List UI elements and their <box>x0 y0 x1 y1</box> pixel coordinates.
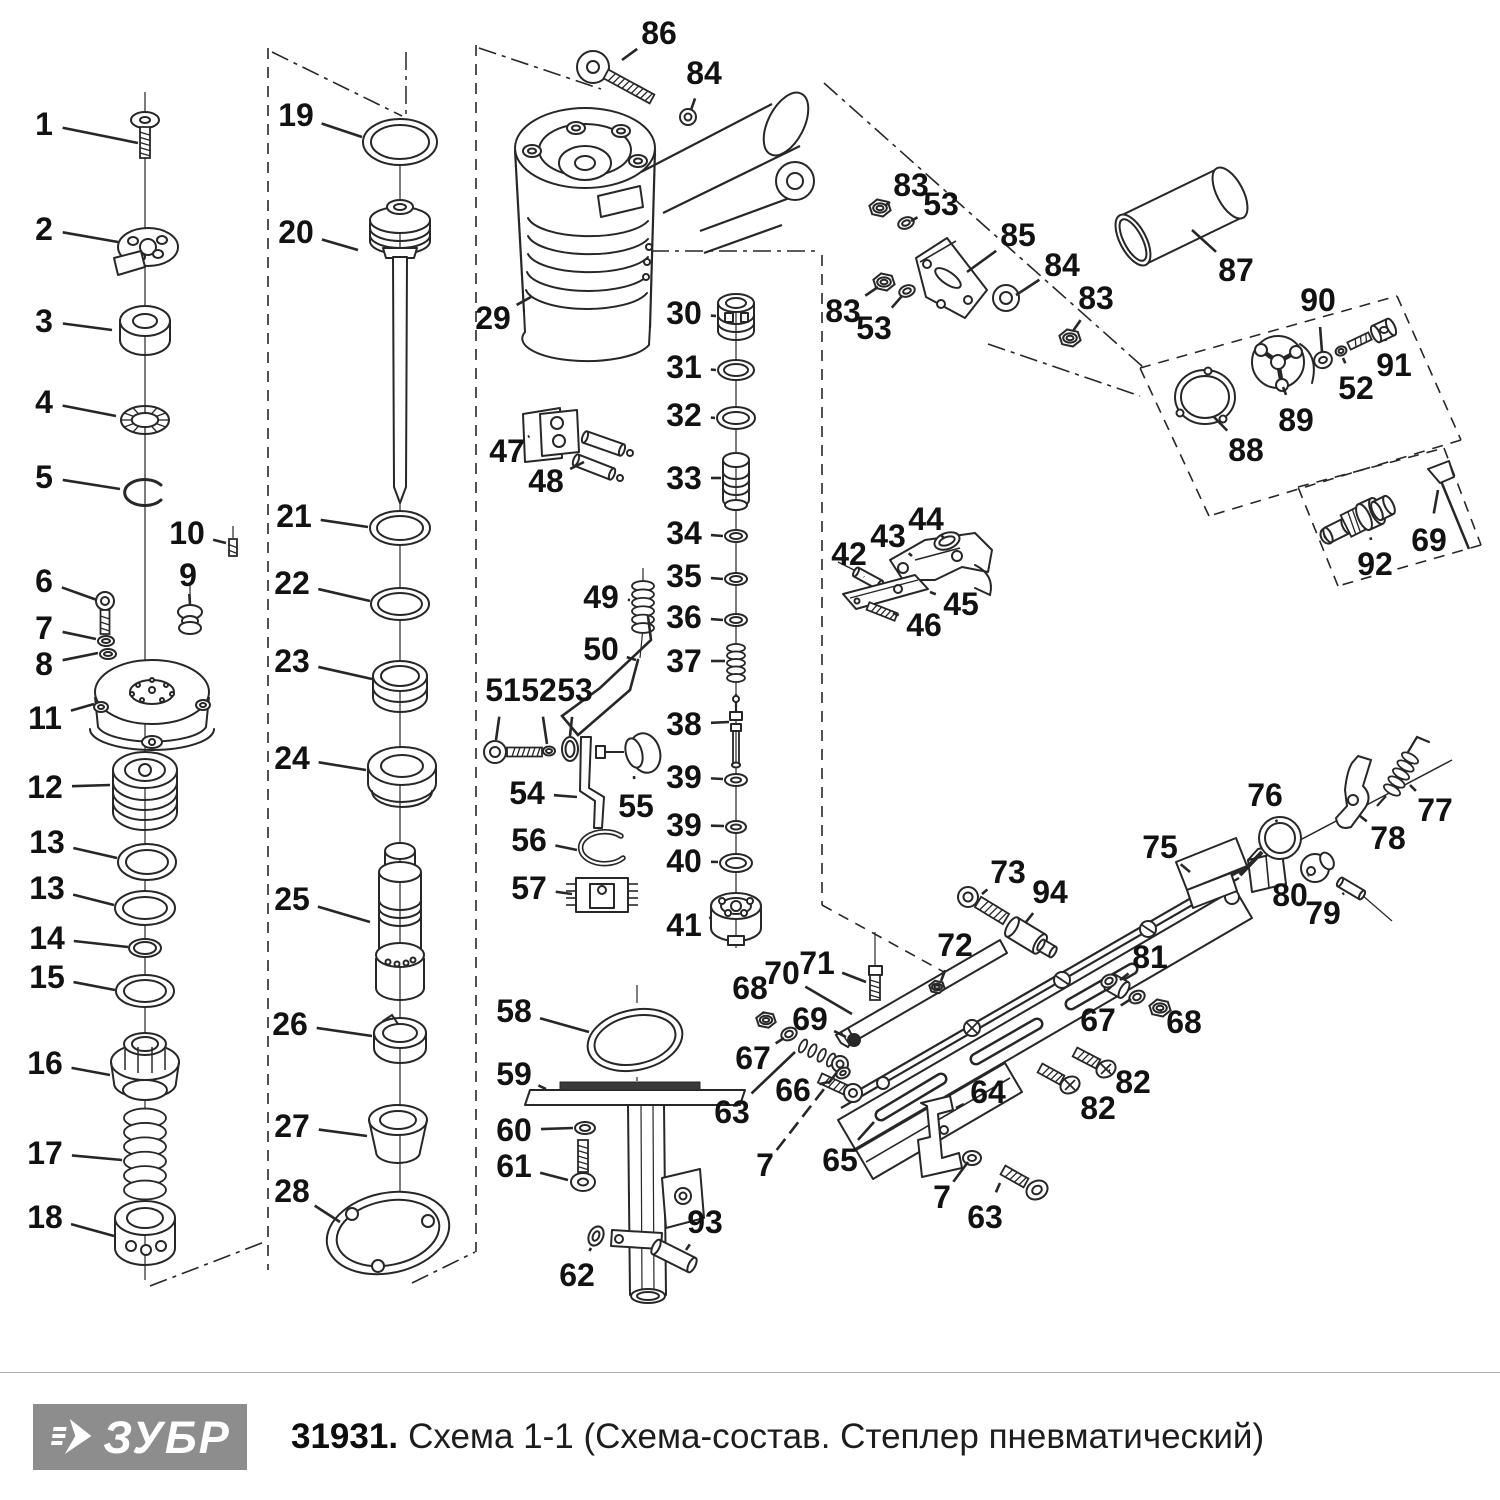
svg-text:76: 76 <box>1247 777 1283 813</box>
svg-text:75: 75 <box>1142 829 1178 865</box>
svg-text:83: 83 <box>1078 280 1114 316</box>
svg-text:39: 39 <box>666 759 702 795</box>
svg-text:9: 9 <box>179 557 197 593</box>
part-label-28: 28 <box>274 1173 340 1222</box>
svg-text:78: 78 <box>1370 820 1406 856</box>
svg-text:49: 49 <box>583 579 619 615</box>
part-label-69: 69 <box>1411 490 1447 558</box>
svg-text:90: 90 <box>1300 282 1336 318</box>
svg-text:92: 92 <box>1357 546 1393 582</box>
part-label-57: 57 <box>511 870 572 906</box>
svg-text:2: 2 <box>35 211 53 247</box>
svg-text:14: 14 <box>29 920 65 956</box>
part-label-71: 71 <box>799 945 866 982</box>
svg-text:77: 77 <box>1417 792 1453 828</box>
svg-text:91: 91 <box>1376 347 1412 383</box>
part-label-17: 17 <box>27 1135 122 1171</box>
part-label-84: 84 <box>1016 247 1080 295</box>
zubr-arrow-icon <box>49 1417 95 1457</box>
svg-text:16: 16 <box>27 1045 63 1081</box>
svg-text:22: 22 <box>274 565 310 601</box>
svg-text:63: 63 <box>714 1094 750 1130</box>
svg-text:21: 21 <box>276 498 312 534</box>
svg-text:81: 81 <box>1132 939 1168 975</box>
part-label-12: 12 <box>27 769 110 805</box>
svg-text:48: 48 <box>528 463 564 499</box>
svg-text:57: 57 <box>511 870 547 906</box>
part-label-92: 92 <box>1357 537 1393 582</box>
part-label-3: 3 <box>35 303 112 339</box>
svg-text:73: 73 <box>990 854 1026 890</box>
part-label-13: 13 <box>29 870 114 906</box>
part-label-61: 61 <box>496 1148 568 1184</box>
svg-text:88: 88 <box>1228 432 1264 468</box>
part-label-56: 56 <box>511 822 577 858</box>
svg-text:20: 20 <box>278 214 314 250</box>
svg-text:42: 42 <box>831 536 867 572</box>
part-label-78: 78 <box>1360 816 1406 856</box>
svg-text:24: 24 <box>274 740 310 776</box>
construction-lines <box>145 45 1481 1286</box>
svg-text:4: 4 <box>35 384 53 420</box>
part-label-31: 31 <box>666 349 716 385</box>
svg-text:53: 53 <box>557 672 593 708</box>
svg-text:86: 86 <box>641 15 677 51</box>
svg-text:39: 39 <box>666 807 702 843</box>
part-label-36: 36 <box>666 599 723 635</box>
part-label-52: 52 <box>521 672 557 744</box>
svg-text:33: 33 <box>666 460 702 496</box>
part-label-84: 84 <box>686 55 722 110</box>
part-label-37: 37 <box>666 643 725 679</box>
part-label-68: 68 <box>1160 1004 1202 1040</box>
part-label-75: 75 <box>1142 829 1190 872</box>
svg-text:35: 35 <box>666 558 702 594</box>
svg-text:72: 72 <box>937 927 973 963</box>
part-label-43: 43 <box>870 518 912 556</box>
svg-text:3: 3 <box>35 303 53 339</box>
part-label-9: 9 <box>179 557 197 604</box>
part-label-10: 10 <box>169 515 226 551</box>
svg-text:52: 52 <box>521 672 557 708</box>
part-label-32: 32 <box>666 397 715 433</box>
svg-text:64: 64 <box>970 1074 1006 1110</box>
part-label-93: 93 <box>686 1204 723 1250</box>
svg-text:79: 79 <box>1305 895 1341 931</box>
part-label-41: 41 <box>666 907 710 943</box>
part-label-34: 34 <box>666 515 723 551</box>
part-label-59: 59 <box>496 1056 546 1092</box>
svg-text:18: 18 <box>27 1199 63 1235</box>
svg-text:94: 94 <box>1032 874 1068 910</box>
part-label-38: 38 <box>666 706 729 742</box>
part-label-87: 87 <box>1192 230 1254 288</box>
svg-text:13: 13 <box>29 824 65 860</box>
svg-text:26: 26 <box>272 1006 308 1042</box>
part-label-53: 53 <box>856 296 902 346</box>
part-label-21: 21 <box>276 498 368 534</box>
svg-text:17: 17 <box>27 1135 63 1171</box>
svg-text:6: 6 <box>35 563 53 599</box>
svg-text:58: 58 <box>496 993 532 1029</box>
svg-text:84: 84 <box>1044 247 1080 283</box>
svg-text:68: 68 <box>1166 1004 1202 1040</box>
svg-text:67: 67 <box>1080 1002 1116 1038</box>
part-label-55: 55 <box>618 776 654 824</box>
svg-text:46: 46 <box>906 607 942 643</box>
svg-text:53: 53 <box>923 186 959 222</box>
svg-text:82: 82 <box>1080 1090 1116 1126</box>
part-label-25: 25 <box>274 881 370 922</box>
part-label-90: 90 <box>1300 282 1336 352</box>
svg-text:47: 47 <box>489 433 525 469</box>
svg-text:54: 54 <box>509 775 545 811</box>
part-label-35: 35 <box>666 558 723 594</box>
part-label-94: 94 <box>1026 874 1068 922</box>
svg-text:8: 8 <box>35 646 53 682</box>
svg-text:1: 1 <box>35 106 53 142</box>
svg-text:69: 69 <box>1411 522 1447 558</box>
part-label-67: 67 <box>1080 999 1131 1038</box>
svg-text:7: 7 <box>35 610 53 646</box>
svg-text:30: 30 <box>666 295 702 331</box>
part-label-76: 76 <box>1247 777 1283 822</box>
svg-text:31: 31 <box>666 349 702 385</box>
svg-text:41: 41 <box>666 907 702 943</box>
svg-text:80: 80 <box>1272 877 1308 913</box>
footer: ЗУБР 31931.Схема 1-1 (Схема-состав. Степ… <box>0 1372 1500 1500</box>
part-label-13: 13 <box>29 824 117 860</box>
part-label-20: 20 <box>278 214 358 250</box>
part-label-30: 30 <box>666 295 716 331</box>
svg-text:43: 43 <box>870 518 906 554</box>
svg-text:13: 13 <box>29 870 65 906</box>
svg-text:84: 84 <box>686 55 722 91</box>
part-label-18: 18 <box>27 1199 114 1236</box>
part-label-91: 91 <box>1376 339 1412 383</box>
svg-text:19: 19 <box>278 97 314 133</box>
svg-text:69: 69 <box>792 1001 828 1037</box>
svg-text:23: 23 <box>274 643 310 679</box>
part-label-49: 49 <box>583 579 630 615</box>
exploded-parts-diagram: 1234567891011121313141516171819202122232… <box>0 0 1500 1372</box>
part-label-52: 52 <box>1338 358 1374 406</box>
svg-text:34: 34 <box>666 515 702 551</box>
svg-text:60: 60 <box>496 1112 532 1148</box>
svg-text:50: 50 <box>583 631 619 667</box>
svg-text:93: 93 <box>687 1204 723 1240</box>
part-label-68: 68 <box>732 970 768 1014</box>
part-label-2: 2 <box>35 211 118 247</box>
part-label-58: 58 <box>496 993 589 1032</box>
svg-text:7: 7 <box>756 1147 774 1183</box>
part-label-8: 8 <box>35 646 98 682</box>
part-label-27: 27 <box>274 1108 367 1144</box>
svg-text:5: 5 <box>35 459 53 495</box>
svg-text:27: 27 <box>274 1108 310 1144</box>
part-label-62: 62 <box>559 1248 595 1293</box>
svg-text:70: 70 <box>764 955 800 991</box>
svg-text:56: 56 <box>511 822 547 858</box>
svg-text:89: 89 <box>1278 402 1314 438</box>
part-label-6: 6 <box>35 563 97 600</box>
svg-text:38: 38 <box>666 706 702 742</box>
diagram-caption: 31931.Схема 1-1 (Схема-состав. Степлер п… <box>291 1417 1264 1457</box>
part-label-82: 82 <box>1076 1089 1116 1126</box>
svg-text:66: 66 <box>775 1072 811 1108</box>
diagram-page: 1234567891011121313141516171819202122232… <box>0 0 1500 1500</box>
part-label-5: 5 <box>35 459 120 495</box>
svg-text:59: 59 <box>496 1056 532 1092</box>
part-label-80: 80 <box>1272 875 1308 913</box>
part-label-54: 54 <box>509 775 577 811</box>
svg-text:29: 29 <box>475 300 511 336</box>
part-label-73: 73 <box>982 854 1026 894</box>
part-label-88: 88 <box>1214 417 1264 468</box>
svg-text:25: 25 <box>274 881 310 917</box>
brand-text: ЗУБР <box>103 1415 231 1460</box>
svg-text:53: 53 <box>856 310 892 346</box>
svg-text:67: 67 <box>735 1040 771 1076</box>
diagram-title: Схема 1-1 (Схема-состав. Степлер пневмат… <box>408 1417 1264 1456</box>
part-label-89: 89 <box>1278 387 1314 438</box>
zubr-logo: ЗУБР <box>33 1404 247 1470</box>
svg-text:62: 62 <box>559 1257 595 1293</box>
part-label-46: 46 <box>893 607 942 643</box>
svg-text:32: 32 <box>666 397 702 433</box>
part-label-40: 40 <box>666 843 718 879</box>
svg-text:28: 28 <box>274 1173 310 1209</box>
part-label-14: 14 <box>29 920 128 956</box>
part-label-23: 23 <box>274 643 372 679</box>
svg-text:61: 61 <box>496 1148 532 1184</box>
part-label-77: 77 <box>1410 785 1453 828</box>
svg-text:85: 85 <box>1000 217 1036 253</box>
svg-text:37: 37 <box>666 643 702 679</box>
svg-text:45: 45 <box>943 586 979 622</box>
svg-text:51: 51 <box>485 672 521 708</box>
part-label-1: 1 <box>35 106 138 143</box>
part-label-11: 11 <box>28 700 94 736</box>
part-label-19: 19 <box>278 97 362 137</box>
svg-text:63: 63 <box>967 1199 1003 1235</box>
part-label-44: 44 <box>908 501 944 539</box>
svg-text:68: 68 <box>732 970 768 1006</box>
part-label-7: 7 <box>35 610 96 646</box>
part-label-15: 15 <box>29 959 115 995</box>
part-label-47: 47 <box>489 433 529 469</box>
part-label-39: 39 <box>666 759 723 795</box>
svg-text:11: 11 <box>28 700 62 736</box>
part-label-16: 16 <box>27 1045 110 1081</box>
part-label-39: 39 <box>666 807 724 843</box>
svg-text:52: 52 <box>1338 370 1374 406</box>
part-label-83: 83 <box>1073 280 1114 331</box>
part-label-42: 42 <box>831 536 867 577</box>
svg-text:71: 71 <box>799 945 835 981</box>
part-label-51: 51 <box>485 672 521 740</box>
part-label-86: 86 <box>622 15 677 60</box>
svg-text:40: 40 <box>666 843 702 879</box>
svg-text:12: 12 <box>27 769 63 805</box>
part-label-4: 4 <box>35 384 116 420</box>
part-label-60: 60 <box>496 1112 573 1148</box>
part-label-26: 26 <box>272 1006 372 1042</box>
svg-text:82: 82 <box>1115 1064 1151 1100</box>
svg-text:7: 7 <box>933 1179 951 1215</box>
svg-text:10: 10 <box>169 515 205 551</box>
part-label-33: 33 <box>666 460 721 496</box>
svg-text:65: 65 <box>822 1142 858 1178</box>
part-label-48: 48 <box>528 462 584 499</box>
part-label-29: 29 <box>475 297 531 336</box>
part-label-22: 22 <box>274 565 370 601</box>
part-label-85: 85 <box>967 217 1036 272</box>
svg-text:44: 44 <box>908 501 944 537</box>
part-label-24: 24 <box>274 740 366 776</box>
svg-text:87: 87 <box>1218 252 1254 288</box>
svg-text:15: 15 <box>29 959 65 995</box>
product-code: 31931. <box>291 1417 398 1456</box>
svg-text:36: 36 <box>666 599 702 635</box>
part-label-63: 63 <box>967 1183 1003 1235</box>
part-label-79: 79 <box>1305 893 1344 931</box>
svg-text:55: 55 <box>618 788 654 824</box>
